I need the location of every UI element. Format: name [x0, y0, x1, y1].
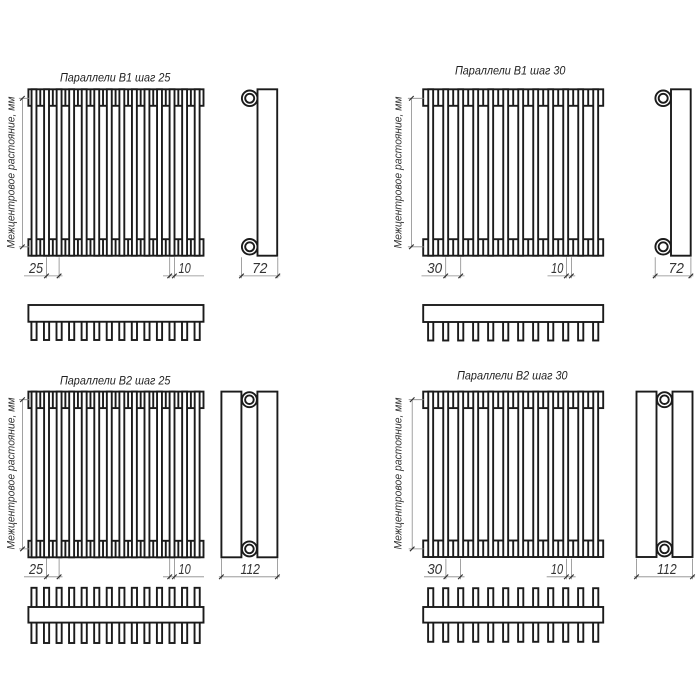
- svg-text:Межцентровое растояние, мм: Межцентровое растояние, мм: [6, 96, 18, 248]
- svg-text:Межцентровое растояние, мм: Межцентровое растояние, мм: [393, 397, 405, 549]
- svg-text:Межцентровое растояние, мм: Межцентровое растояние, мм: [393, 96, 405, 248]
- svg-text:112: 112: [657, 561, 677, 578]
- svg-text:72: 72: [252, 260, 268, 277]
- svg-text:10: 10: [551, 260, 564, 277]
- svg-text:25: 25: [28, 260, 43, 277]
- svg-text:Параллели В2 шаг 25: Параллели В2 шаг 25: [60, 375, 171, 387]
- svg-text:25: 25: [28, 561, 43, 578]
- svg-text:30: 30: [427, 260, 443, 277]
- svg-text:Параллели В1 шаг 25: Параллели В1 шаг 25: [60, 73, 171, 85]
- svg-text:Параллели В2 шаг 30: Параллели В2 шаг 30: [457, 370, 568, 382]
- svg-text:30: 30: [427, 561, 443, 578]
- svg-text:112: 112: [240, 561, 260, 578]
- svg-text:10: 10: [551, 561, 564, 578]
- svg-text:Параллели В1 шаг 30: Параллели В1 шаг 30: [455, 65, 566, 77]
- svg-text:10: 10: [179, 561, 192, 578]
- svg-text:72: 72: [669, 260, 685, 277]
- svg-text:Межцентровое растояние, мм: Межцентровое растояние, мм: [6, 397, 18, 549]
- svg-text:10: 10: [179, 260, 192, 277]
